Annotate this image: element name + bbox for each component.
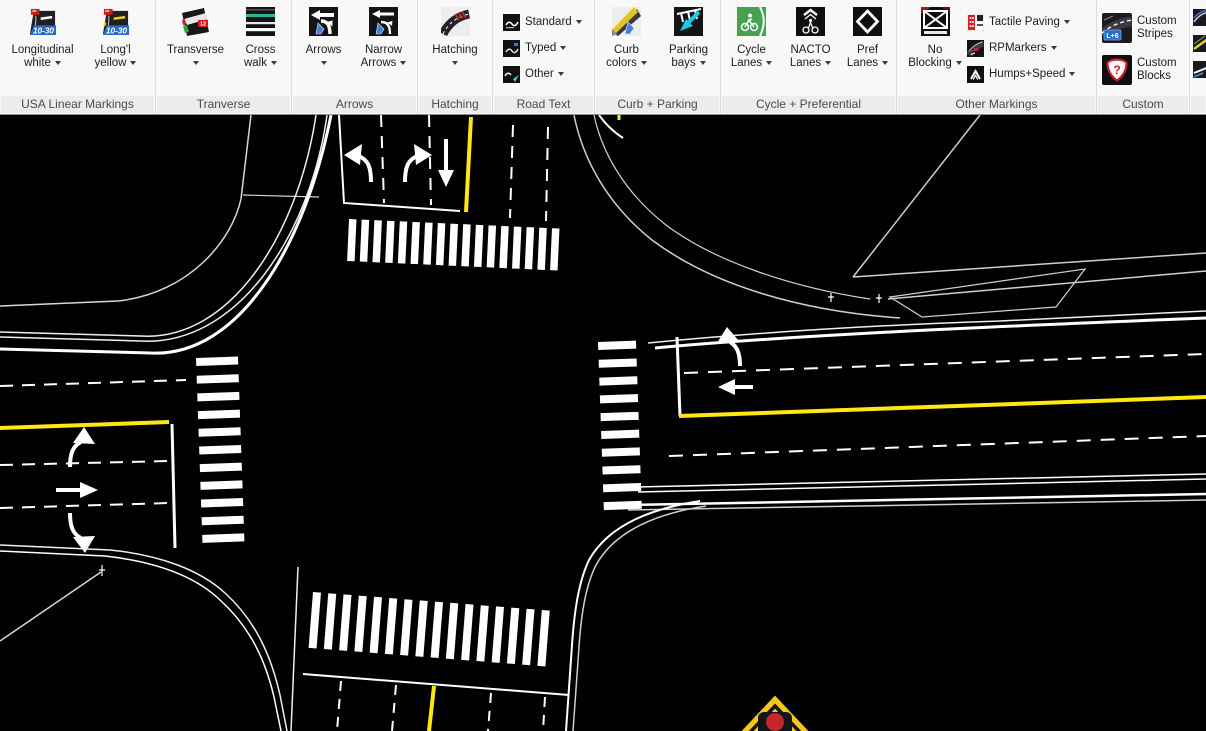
button-label: Transverse [167,44,224,57]
no-blocking-icon [921,7,950,36]
dropdown-caret-icon[interactable] [882,61,888,65]
button-label: Parking [669,44,708,57]
longitudinal-white-icon: 10-30 [28,7,57,36]
group-label-road-text: Road Text [494,96,593,113]
svg-text:10-30: 10-30 [33,27,54,36]
other-road-text-button[interactable]: Other [503,62,582,86]
cross-walk-button[interactable]: Cross walk [233,0,289,70]
button-label: No [928,44,943,57]
ribbon-group-curb-parking: Curb colors Parking bays Curb + Parking [595,0,721,114]
narrow-arrows-icon [369,7,398,36]
button-label: Cross [245,44,275,57]
button-label: Long'l [100,44,130,57]
svg-text:12: 12 [200,22,206,28]
dropdown-caret-icon[interactable] [130,61,136,65]
button-label: Stripes [1137,28,1177,41]
custom-stripes-button[interactable]: L+6 Custom Stripes [1102,8,1177,48]
cycle-lanes-button[interactable]: Cycle Lanes [723,0,781,70]
button-label: Custom [1137,15,1177,28]
transverse-button[interactable]: 12 Transverse [159,0,233,70]
custom-blocks-button[interactable]: ? Custom Blocks [1102,50,1177,90]
button-label: Cycle [737,44,766,57]
button-label: Standard [525,16,572,28]
rpmarkers-button[interactable]: RPMarkers [967,36,1075,60]
dropdown-caret-icon[interactable] [55,61,61,65]
button-label: Tactile Paving [989,16,1060,28]
longl-yellow-button[interactable]: 10-30 Long'l yellow [81,0,151,70]
group-label-other-markings: Other Markings [898,96,1095,113]
narrow-arrows-button[interactable]: Narrow Arrows [353,0,415,70]
hatching-icon [441,7,470,36]
button-label: Humps+Speed [989,68,1065,80]
parking-bays-button[interactable]: Parking bays [658,0,720,70]
button-label: Blocks [1137,70,1177,83]
button-label: Typed [525,42,556,54]
pref-lanes-button[interactable]: Pref Lanes [841,0,895,70]
pref-lanes-icon [853,7,882,36]
svg-text:?: ? [1113,63,1120,77]
dropdown-caret-icon[interactable] [956,61,962,65]
ribbon-group-cycle-preferential: Cycle Lanes NACTO Lanes [721,0,897,114]
arrows-icon [309,7,338,36]
button-label: Longitudinal [11,44,73,57]
partial-icon-2 [1193,35,1206,52]
dropdown-caret-icon[interactable] [1064,20,1070,24]
ribbon-group-other-markings: No Blocking [897,0,1097,114]
group-label-cycle-preferential: Cycle + Preferential [722,96,895,113]
group-label-partial [1191,96,1205,113]
hatching-button[interactable]: Hatching [420,0,490,70]
drawing-canvas[interactable] [0,115,1206,731]
transverse-icon: 12 [181,7,210,36]
button-label: Hatching [432,44,477,57]
group-label-usa-linear-markings: USA Linear Markings [1,96,154,113]
dropdown-caret-icon[interactable] [1051,46,1057,50]
ribbon-group-road-text: Standard Typed [493,0,595,114]
typed-road-text-button[interactable]: Typed [503,36,582,60]
longitudinal-white-button[interactable]: 10-30 Longitudinal white [5,0,81,70]
no-blocking-button[interactable]: No Blocking [903,0,967,70]
curb-colors-icon [612,7,641,36]
button-label: RPMarkers [989,42,1047,54]
cycle-lanes-icon [737,7,766,36]
button-label: NACTO [790,44,830,57]
standard-road-text-icon [503,14,520,31]
dropdown-caret-icon[interactable] [766,61,772,65]
group-label-hatching: Hatching [419,96,491,113]
group-label-custom: Custom [1098,96,1188,113]
nacto-lanes-button[interactable]: NACTO Lanes [781,0,841,70]
parking-bays-icon [674,7,703,36]
arrows-button[interactable]: Arrows [295,0,353,70]
humps-speed-icon [967,66,984,83]
custom-stripes-icon: L+6 [1102,13,1132,43]
ribbon-group-hatching: Hatching Hatching [418,0,493,114]
other-road-text-icon [503,66,520,83]
dropdown-caret-icon[interactable] [560,46,566,50]
dropdown-caret-icon[interactable] [271,61,277,65]
group-label-curb-parking: Curb + Parking [596,96,719,113]
group-label-tranverse: Tranverse [157,96,290,113]
curb-colors-button[interactable]: Curb colors [596,0,658,70]
ribbon-group-custom: L+6 Custom Stripes ? [1097,0,1190,114]
humps-speed-button[interactable]: Humps+Speed [967,62,1075,86]
ribbon-group-partial [1190,0,1206,114]
button-label: Curb [614,44,639,57]
dropdown-caret-icon[interactable] [558,72,564,76]
nacto-lanes-icon [796,7,825,36]
tactile-paving-icon [967,14,984,31]
partial-icon-1 [1193,9,1206,26]
partial-icon-3 [1193,61,1206,78]
dropdown-caret-icon[interactable] [1069,72,1075,76]
group-label-arrows: Arrows [293,96,416,113]
cross-walk-icon [246,7,275,36]
dropdown-caret-icon[interactable] [825,61,831,65]
button-label: Pref [857,44,878,57]
dropdown-caret-icon[interactable] [576,20,582,24]
dropdown-caret-icon[interactable] [700,61,706,65]
svg-text:10-30: 10-30 [106,27,127,36]
tactile-paving-button[interactable]: Tactile Paving [967,10,1075,34]
rpmarkers-icon [967,40,984,57]
ribbon-group-arrows: Arrows Narrow Arrows Arrows [292,0,418,114]
longl-yellow-icon: 10-30 [101,7,130,36]
standard-road-text-button[interactable]: Standard [503,10,582,34]
button-label: Arrows [306,44,342,57]
dropdown-caret-icon[interactable] [321,61,327,65]
ribbon: 10-30 Longitudinal white 10 [0,0,1206,115]
dropdown-caret-icon[interactable] [193,61,199,65]
button-label: Narrow [365,44,402,57]
button-label: Custom [1137,57,1177,70]
dropdown-caret-icon[interactable] [400,61,406,65]
svg-text:L+6: L+6 [1106,33,1118,40]
ribbon-group-tranverse: 12 Transverse Cross walk [156,0,292,114]
ribbon-group-usa-linear-markings: 10-30 Longitudinal white 10 [0,0,156,114]
dropdown-caret-icon[interactable] [452,61,458,65]
dropdown-caret-icon[interactable] [641,61,647,65]
typed-road-text-icon [503,40,520,57]
button-label: Other [525,68,554,80]
custom-blocks-icon: ? [1102,55,1132,85]
